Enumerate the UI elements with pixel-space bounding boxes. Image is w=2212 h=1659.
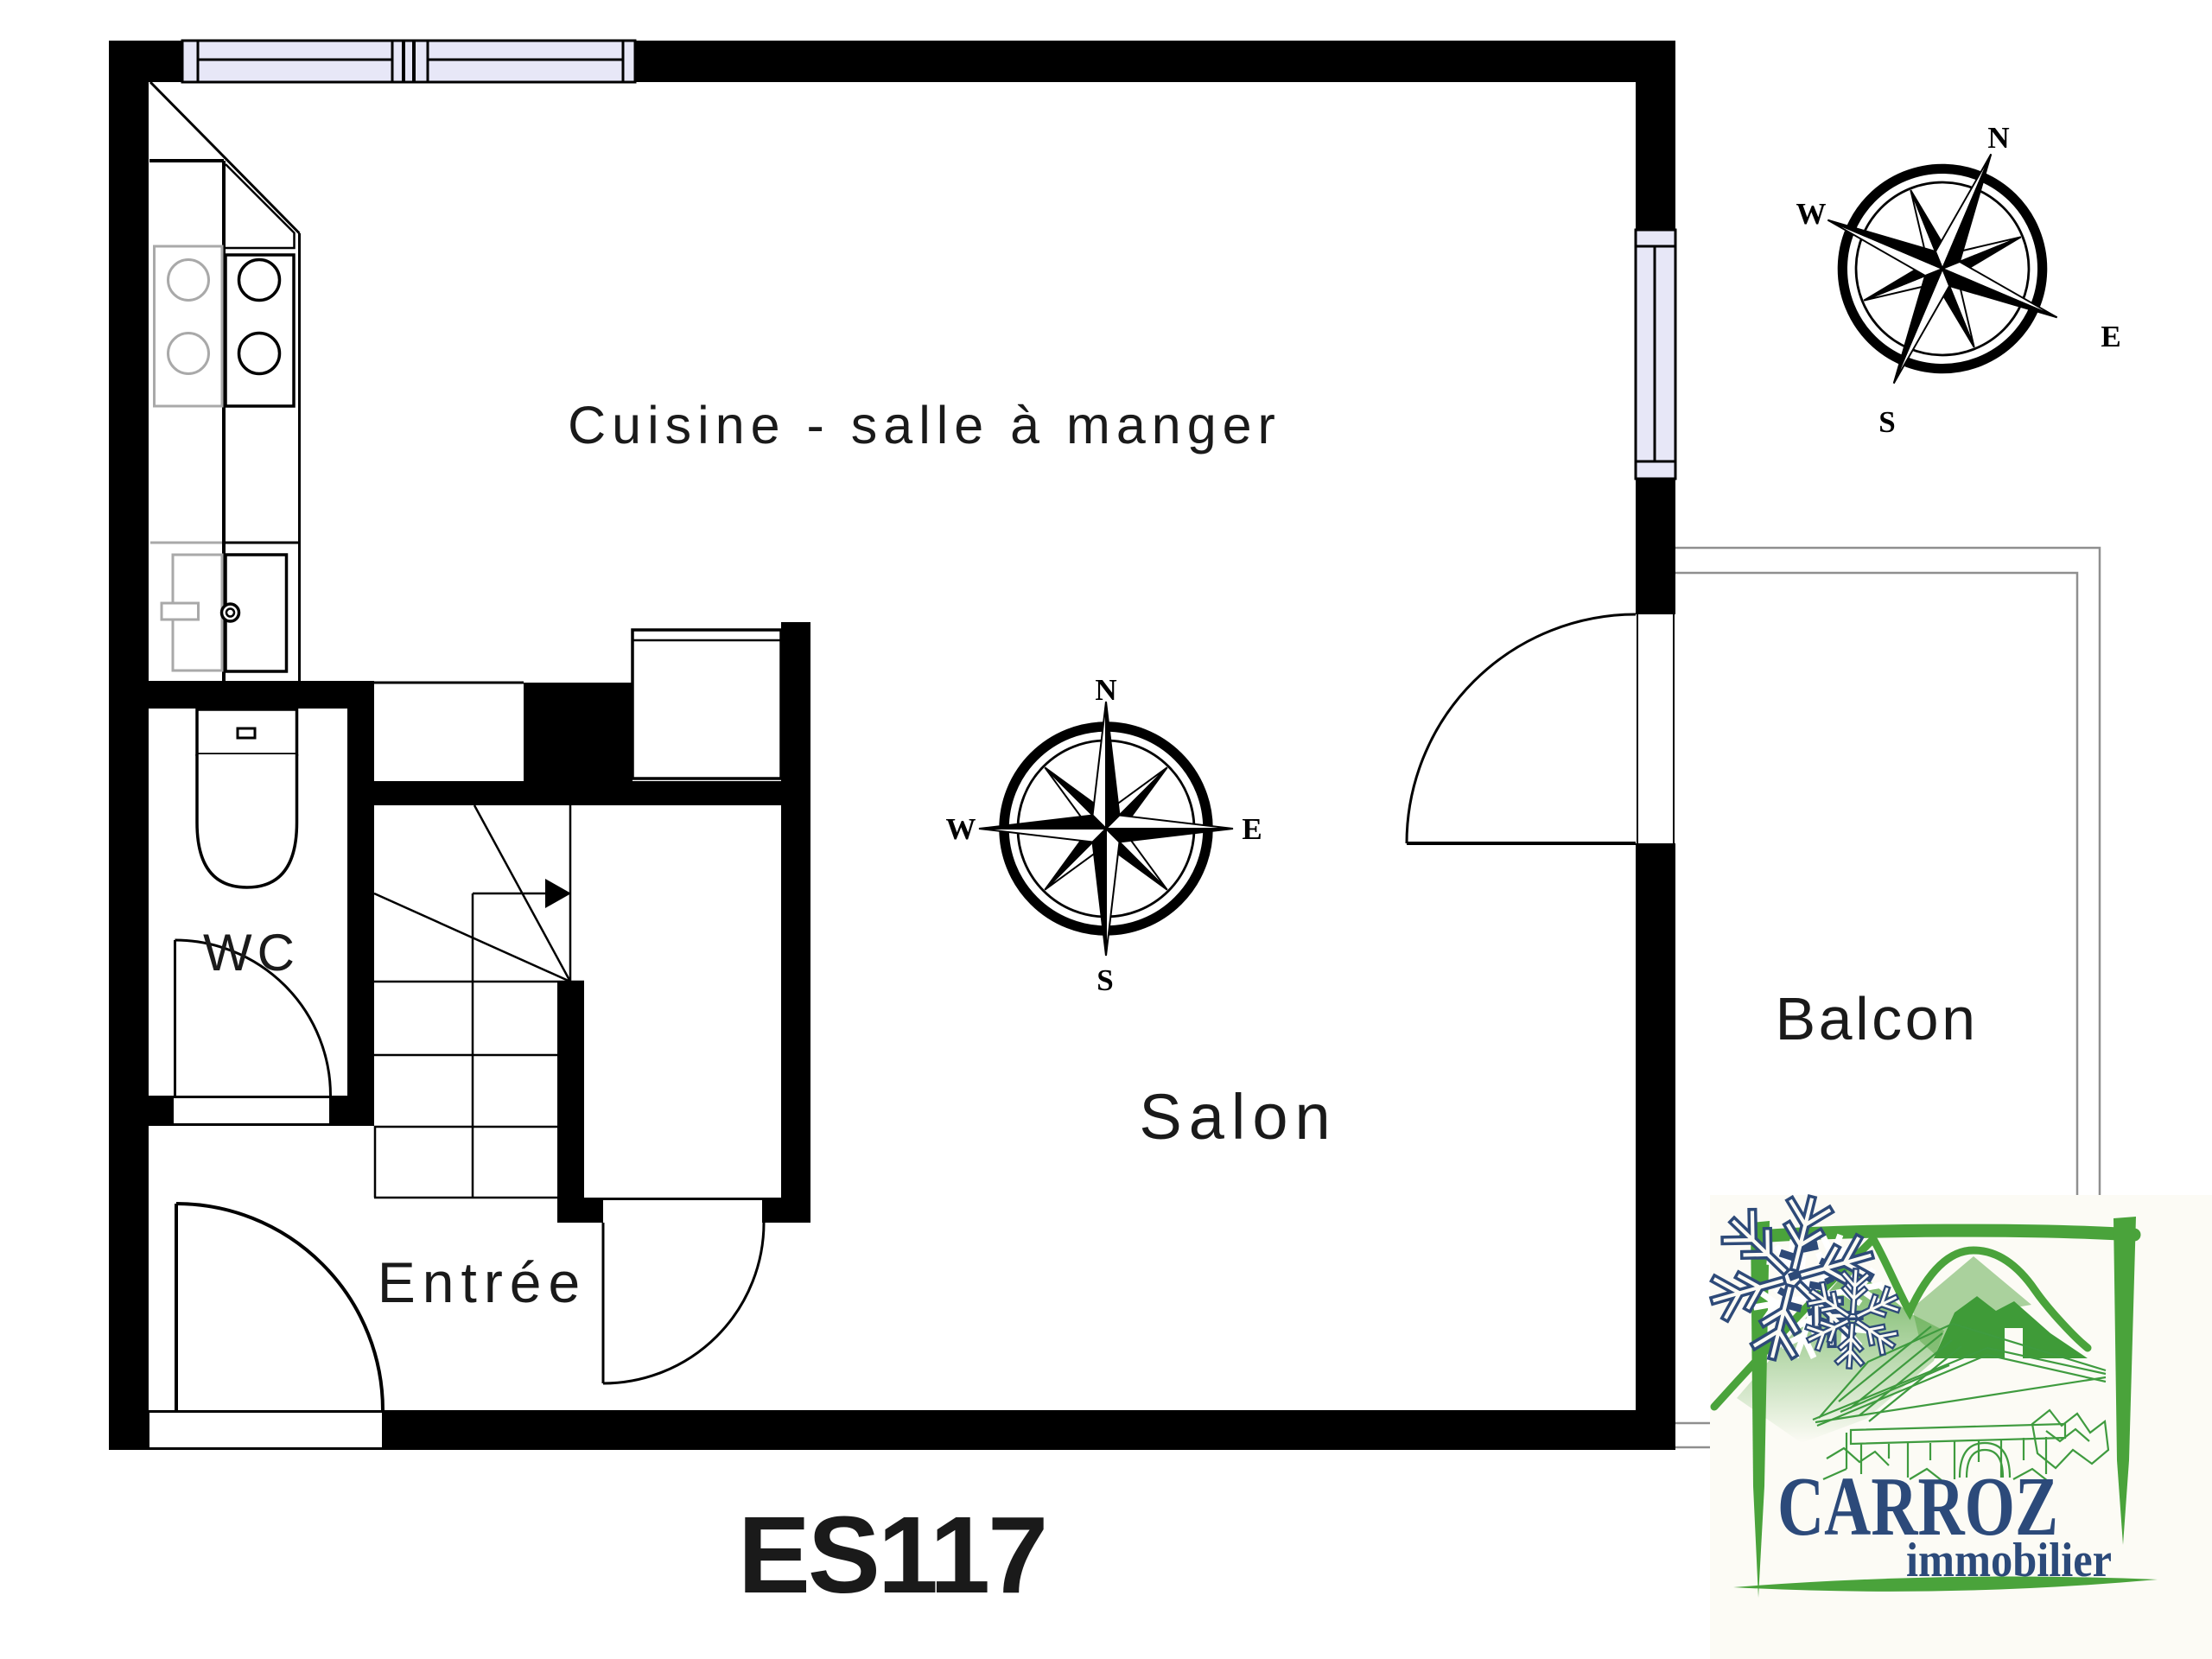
svg-text:W: W [1796,197,1827,231]
svg-text:S: S [1878,405,1895,439]
svg-text:E: E [1242,812,1262,846]
svg-text:E: E [2101,320,2120,353]
svg-text:W: W [946,812,976,846]
svg-text:Entrée: Entrée [378,1250,587,1314]
svg-text:Balcon: Balcon [1775,985,1978,1052]
svg-text:Salon: Salon [1139,1081,1337,1153]
svg-text:Cuisine - salle à manger: Cuisine - salle à manger [568,396,1281,454]
svg-text:WC: WC [203,924,300,982]
svg-text:N: N [1095,673,1116,707]
svg-text:N: N [1987,121,2009,155]
svg-text:S: S [1096,963,1113,997]
svg-text:immobilier: immobilier [1906,1534,2112,1587]
svg-text:ES117: ES117 [738,1494,1046,1616]
